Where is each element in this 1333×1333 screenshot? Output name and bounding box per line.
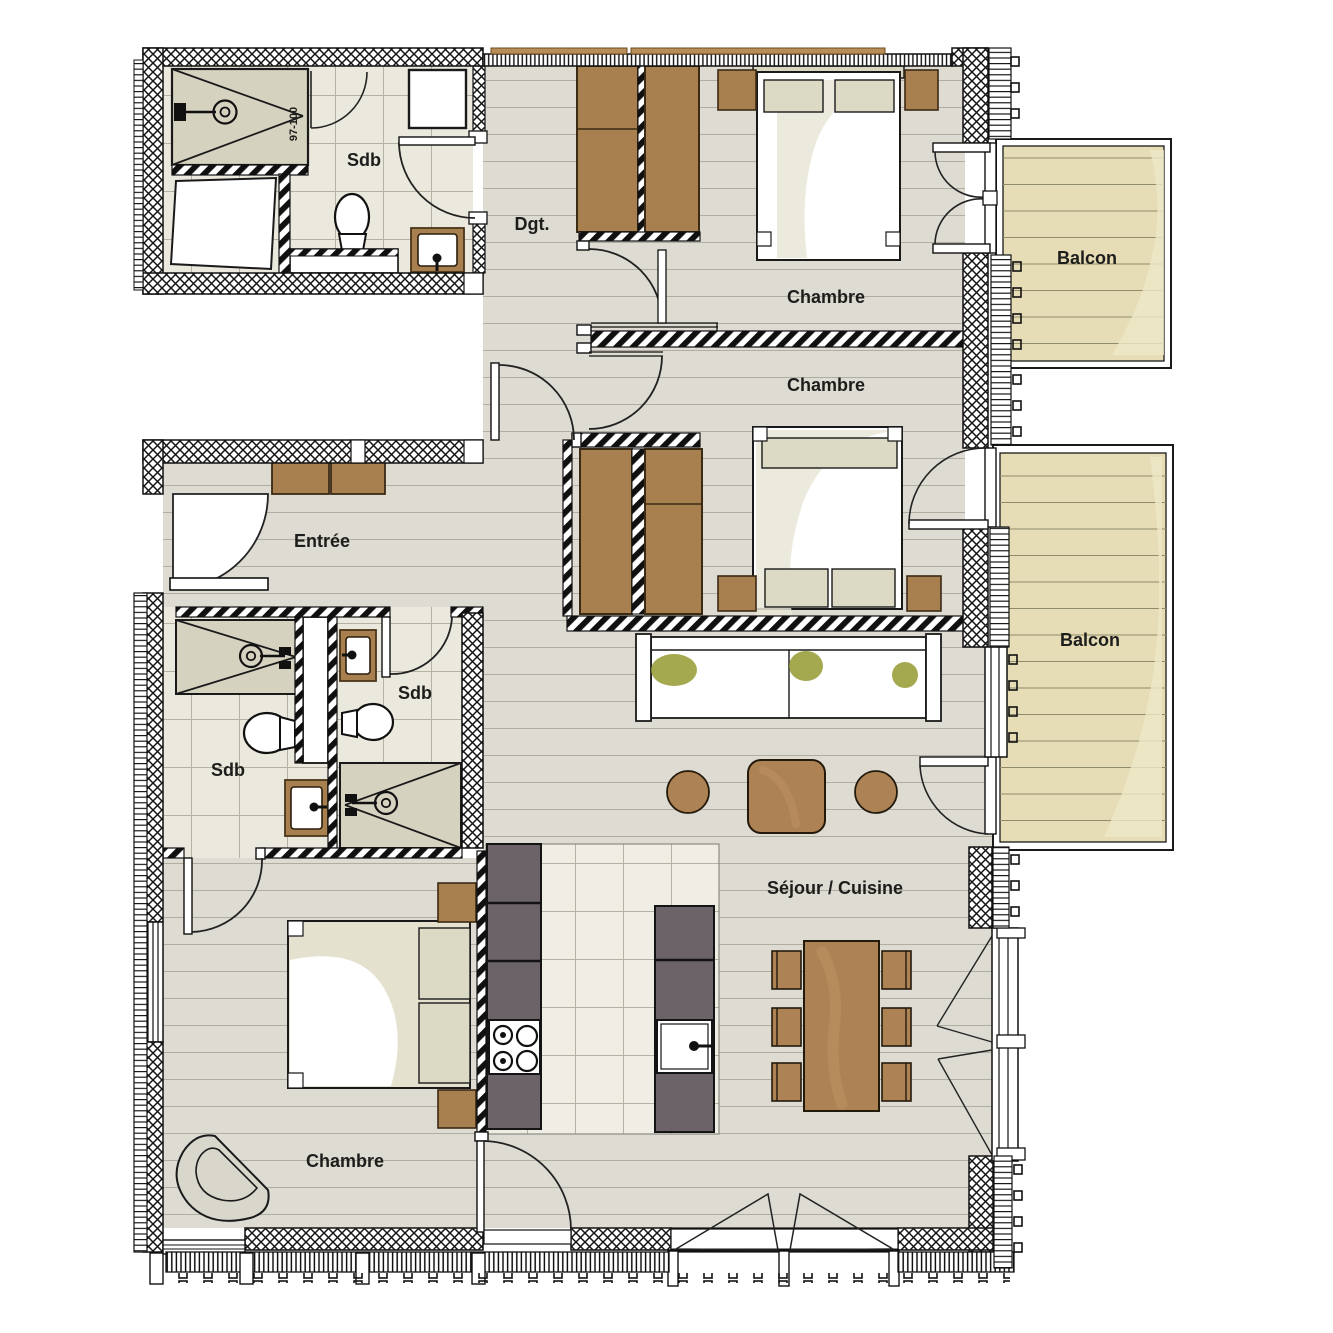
svg-text:Sdb: Sdb [347, 150, 381, 170]
svg-text:97-100: 97-100 [288, 107, 300, 141]
svg-text:Chambre: Chambre [787, 375, 865, 395]
svg-text:Balcon: Balcon [1060, 630, 1120, 650]
svg-text:Entrée: Entrée [294, 531, 350, 551]
svg-text:Balcon: Balcon [1057, 248, 1117, 268]
svg-text:Dgt.: Dgt. [515, 214, 550, 234]
svg-text:Chambre: Chambre [306, 1151, 384, 1171]
svg-text:Chambre: Chambre [787, 287, 865, 307]
svg-text:Sdb: Sdb [398, 683, 432, 703]
svg-text:Sdb: Sdb [211, 760, 245, 780]
svg-text:Séjour / Cuisine: Séjour / Cuisine [767, 878, 903, 898]
